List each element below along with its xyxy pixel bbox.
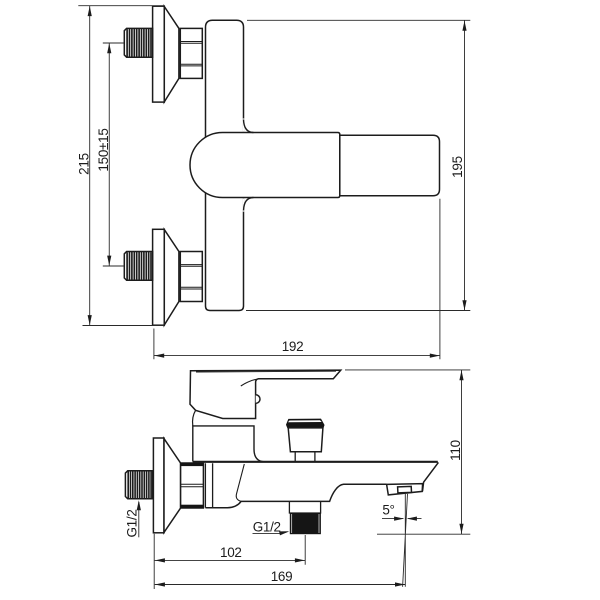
- svg-text:195: 195: [450, 156, 465, 178]
- svg-text:G1/2: G1/2: [124, 509, 139, 537]
- svg-text:102: 102: [220, 545, 242, 560]
- svg-text:215: 215: [76, 153, 91, 175]
- svg-text:169: 169: [271, 569, 293, 584]
- svg-text:192: 192: [282, 339, 304, 354]
- svg-text:5°: 5°: [382, 503, 394, 518]
- svg-text:G1/2: G1/2: [253, 520, 281, 535]
- svg-text:110: 110: [448, 440, 463, 461]
- svg-text:150±15: 150±15: [96, 128, 111, 171]
